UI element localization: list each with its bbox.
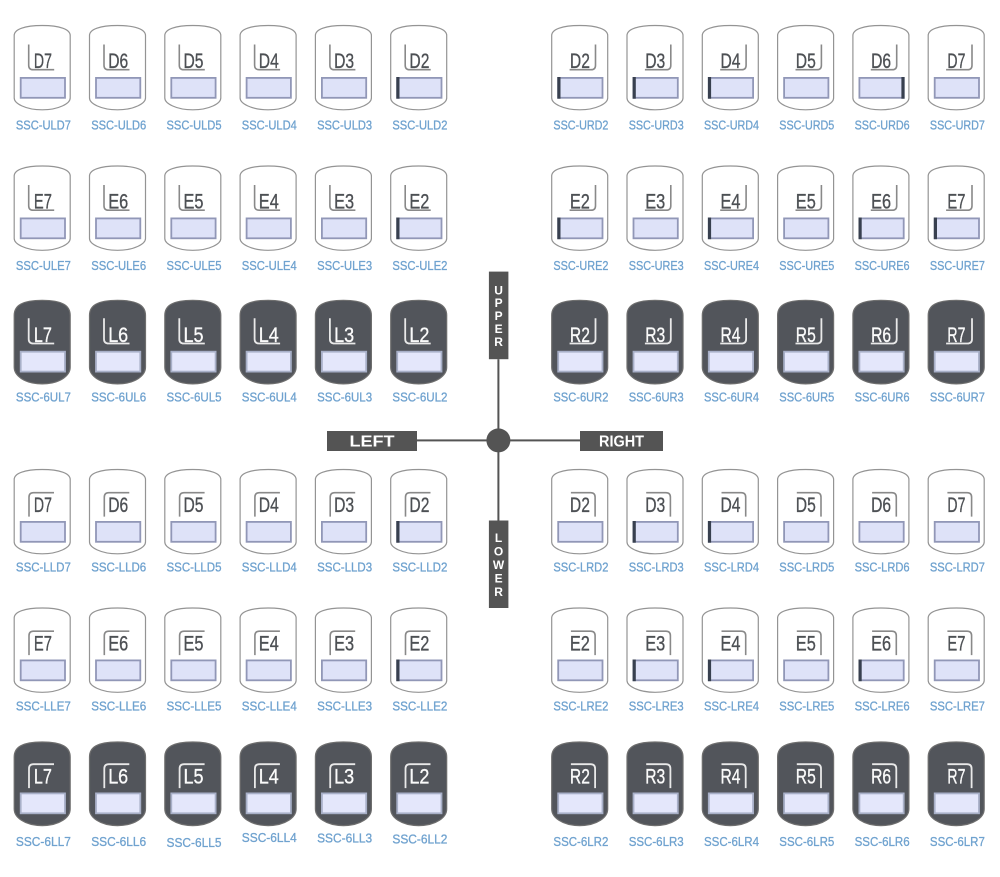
svg-text:SSC-URD4: SSC-URD4: [704, 117, 759, 132]
svg-text:D7: D7: [34, 493, 52, 517]
svg-text:SSC-URE4: SSC-URE4: [704, 258, 759, 273]
svg-text:SSC-LLD2: SSC-LLD2: [392, 560, 447, 575]
svg-text:D3: D3: [334, 49, 354, 73]
svg-text:SSC-LLE4: SSC-LLE4: [242, 699, 297, 714]
svg-text:SSC-ULD2: SSC-ULD2: [392, 117, 447, 132]
svg-text:E7: E7: [34, 632, 52, 656]
svg-text:D2: D2: [409, 493, 429, 517]
svg-text:SSC-ULE6: SSC-ULE6: [91, 258, 146, 273]
svg-text:L5: L5: [184, 765, 204, 789]
svg-text:SSC-LRE4: SSC-LRE4: [704, 699, 759, 714]
svg-text:SSC-6LL7: SSC-6LL7: [16, 834, 71, 849]
svg-text:SSC-URD3: SSC-URD3: [629, 117, 684, 132]
svg-text:D4: D4: [721, 49, 741, 73]
svg-text:SSC-ULD7: SSC-ULD7: [16, 117, 71, 132]
svg-text:L: L: [495, 531, 502, 545]
svg-text:SSC-6UR6: SSC-6UR6: [855, 390, 910, 405]
svg-text:SSC-LRE3: SSC-LRE3: [629, 699, 684, 714]
svg-text:U: U: [494, 283, 503, 297]
svg-text:E5: E5: [796, 190, 816, 214]
svg-text:SSC-ULD6: SSC-ULD6: [91, 117, 146, 132]
svg-text:SSC-6UR7: SSC-6UR7: [930, 390, 985, 405]
svg-text:R2: R2: [570, 765, 590, 789]
svg-text:SSC-ULE4: SSC-ULE4: [242, 258, 297, 273]
svg-text:R: R: [494, 585, 503, 599]
svg-text:L3: L3: [334, 765, 354, 789]
svg-text:E5: E5: [184, 632, 204, 656]
svg-text:E3: E3: [334, 190, 354, 214]
svg-text:SSC-6UR2: SSC-6UR2: [553, 390, 608, 405]
svg-text:D6: D6: [871, 49, 891, 73]
svg-text:SSC-LRD3: SSC-LRD3: [629, 560, 684, 575]
svg-text:D6: D6: [108, 493, 128, 517]
svg-text:SSC-6UL4: SSC-6UL4: [242, 390, 297, 405]
svg-text:R3: R3: [645, 323, 665, 347]
svg-text:SSC-LRE6: SSC-LRE6: [855, 699, 910, 714]
svg-text:SSC-ULE7: SSC-ULE7: [16, 258, 71, 273]
svg-text:SSC-URD5: SSC-URD5: [779, 117, 834, 132]
svg-text:D4: D4: [721, 493, 741, 517]
svg-text:L4: L4: [259, 323, 279, 347]
svg-text:SSC-6UL5: SSC-6UL5: [167, 390, 222, 405]
svg-text:E2: E2: [409, 190, 429, 214]
svg-text:W: W: [493, 558, 505, 572]
svg-text:E4: E4: [721, 632, 741, 656]
svg-text:R: R: [494, 335, 503, 349]
svg-text:E5: E5: [796, 632, 816, 656]
svg-text:LEFT: LEFT: [350, 434, 395, 451]
svg-text:D3: D3: [645, 493, 665, 517]
svg-text:E4: E4: [259, 190, 279, 214]
svg-text:R2: R2: [570, 323, 590, 347]
svg-text:SSC-URE5: SSC-URE5: [779, 258, 834, 273]
svg-text:E2: E2: [570, 190, 590, 214]
svg-text:L2: L2: [409, 765, 429, 789]
svg-text:SSC-LRD2: SSC-LRD2: [553, 560, 608, 575]
svg-text:SSC-6LR2: SSC-6LR2: [553, 834, 608, 849]
svg-text:SSC-LLD7: SSC-LLD7: [16, 560, 71, 575]
svg-text:P: P: [495, 309, 503, 323]
svg-text:E7: E7: [947, 190, 965, 214]
svg-text:L5: L5: [184, 323, 204, 347]
svg-text:SSC-ULE2: SSC-ULE2: [392, 258, 447, 273]
svg-text:SSC-6UR4: SSC-6UR4: [704, 390, 759, 405]
svg-text:SSC-6UL2: SSC-6UL2: [392, 390, 447, 405]
svg-text:D5: D5: [796, 493, 816, 517]
svg-text:E6: E6: [871, 632, 891, 656]
svg-text:SSC-URE6: SSC-URE6: [855, 258, 910, 273]
svg-text:SSC-6LL3: SSC-6LL3: [317, 831, 372, 846]
svg-text:D7: D7: [947, 49, 965, 73]
svg-text:R6: R6: [871, 765, 891, 789]
svg-text:R5: R5: [796, 323, 816, 347]
svg-text:SSC-LRD6: SSC-LRD6: [855, 560, 910, 575]
svg-text:E3: E3: [645, 632, 665, 656]
svg-text:E4: E4: [721, 190, 741, 214]
svg-text:E: E: [495, 571, 503, 585]
svg-text:SSC-LLE7: SSC-LLE7: [16, 699, 71, 714]
svg-text:SSC-6UL3: SSC-6UL3: [317, 390, 372, 405]
svg-text:SSC-ULD5: SSC-ULD5: [167, 117, 222, 132]
svg-text:SSC-6LR7: SSC-6LR7: [930, 834, 985, 849]
svg-text:SSC-ULE3: SSC-ULE3: [317, 258, 372, 273]
svg-text:R4: R4: [721, 765, 741, 789]
svg-text:R7: R7: [947, 323, 965, 347]
svg-text:E: E: [495, 322, 503, 336]
svg-text:SSC-LLD4: SSC-LLD4: [242, 560, 297, 575]
svg-text:SSC-6LR3: SSC-6LR3: [629, 834, 684, 849]
svg-text:SSC-LRD7: SSC-LRD7: [930, 560, 985, 575]
svg-text:E6: E6: [871, 190, 891, 214]
svg-text:D7: D7: [947, 493, 965, 517]
svg-text:D5: D5: [796, 49, 816, 73]
svg-text:P: P: [495, 296, 503, 310]
svg-text:SSC-6LL4: SSC-6LL4: [242, 830, 297, 845]
svg-text:D6: D6: [108, 49, 128, 73]
svg-text:R5: R5: [796, 765, 816, 789]
svg-text:SSC-LLE6: SSC-LLE6: [91, 699, 146, 714]
svg-text:SSC-6UR3: SSC-6UR3: [629, 390, 684, 405]
svg-text:R6: R6: [871, 323, 891, 347]
svg-text:D7: D7: [34, 49, 52, 73]
svg-text:D5: D5: [184, 493, 204, 517]
svg-text:D6: D6: [871, 493, 891, 517]
svg-text:SSC-LRE7: SSC-LRE7: [930, 699, 985, 714]
svg-text:E7: E7: [34, 190, 52, 214]
svg-text:D2: D2: [570, 49, 590, 73]
svg-text:D3: D3: [334, 493, 354, 517]
svg-text:SSC-ULD4: SSC-ULD4: [242, 117, 297, 132]
svg-text:SSC-6UR5: SSC-6UR5: [779, 390, 834, 405]
svg-text:SSC-LRD4: SSC-LRD4: [704, 560, 759, 575]
svg-text:E2: E2: [570, 632, 590, 656]
svg-text:R4: R4: [721, 323, 741, 347]
svg-text:SSC-ULD3: SSC-ULD3: [317, 117, 372, 132]
svg-text:D2: D2: [570, 493, 590, 517]
svg-text:E2: E2: [409, 632, 429, 656]
svg-text:SSC-6LL5: SSC-6LL5: [167, 835, 222, 850]
svg-text:D4: D4: [259, 49, 279, 73]
svg-text:SSC-URE7: SSC-URE7: [930, 258, 985, 273]
svg-text:RIGHT: RIGHT: [599, 434, 644, 451]
svg-text:SSC-6LR4: SSC-6LR4: [704, 834, 759, 849]
svg-text:SSC-LLE3: SSC-LLE3: [317, 699, 372, 714]
svg-text:E5: E5: [184, 190, 204, 214]
svg-text:SSC-6UL6: SSC-6UL6: [91, 390, 146, 405]
svg-text:E4: E4: [259, 632, 279, 656]
svg-text:E6: E6: [108, 190, 128, 214]
svg-text:SSC-6LL2: SSC-6LL2: [392, 832, 447, 847]
svg-text:SSC-URD7: SSC-URD7: [930, 117, 985, 132]
svg-text:SSC-LLD3: SSC-LLD3: [317, 560, 372, 575]
svg-text:SSC-ULE5: SSC-ULE5: [167, 258, 222, 273]
svg-text:SSC-LLE2: SSC-LLE2: [392, 699, 447, 714]
svg-text:D2: D2: [409, 49, 429, 73]
svg-text:SSC-6UL7: SSC-6UL7: [16, 390, 71, 405]
svg-text:R3: R3: [645, 765, 665, 789]
svg-text:SSC-LLD5: SSC-LLD5: [167, 560, 222, 575]
svg-text:SSC-URE3: SSC-URE3: [629, 258, 684, 273]
svg-text:E6: E6: [108, 632, 128, 656]
svg-text:L2: L2: [409, 323, 429, 347]
svg-text:SSC-LRE2: SSC-LRE2: [553, 699, 608, 714]
svg-text:SSC-LLE5: SSC-LLE5: [167, 699, 222, 714]
svg-text:SSC-LRE5: SSC-LRE5: [779, 699, 834, 714]
svg-text:D5: D5: [184, 49, 204, 73]
svg-text:SSC-URD6: SSC-URD6: [855, 117, 910, 132]
svg-text:L7: L7: [34, 323, 52, 347]
svg-text:E3: E3: [645, 190, 665, 214]
svg-text:E7: E7: [947, 632, 965, 656]
svg-text:SSC-LLD6: SSC-LLD6: [91, 560, 146, 575]
svg-text:O: O: [494, 545, 503, 559]
svg-text:E3: E3: [334, 632, 354, 656]
svg-text:L6: L6: [108, 323, 128, 347]
svg-text:SSC-URD2: SSC-URD2: [553, 117, 608, 132]
svg-text:L7: L7: [34, 765, 52, 789]
svg-text:D3: D3: [645, 49, 665, 73]
svg-text:D4: D4: [259, 493, 279, 517]
svg-text:SSC-URE2: SSC-URE2: [553, 258, 608, 273]
svg-text:L4: L4: [259, 765, 279, 789]
svg-text:SSC-6LL6: SSC-6LL6: [91, 834, 146, 849]
svg-text:L3: L3: [334, 323, 354, 347]
svg-text:R7: R7: [947, 765, 965, 789]
svg-text:SSC-LRD5: SSC-LRD5: [779, 560, 834, 575]
svg-text:SSC-6LR5: SSC-6LR5: [779, 834, 834, 849]
svg-text:SSC-6LR6: SSC-6LR6: [855, 834, 910, 849]
svg-text:L6: L6: [108, 765, 128, 789]
